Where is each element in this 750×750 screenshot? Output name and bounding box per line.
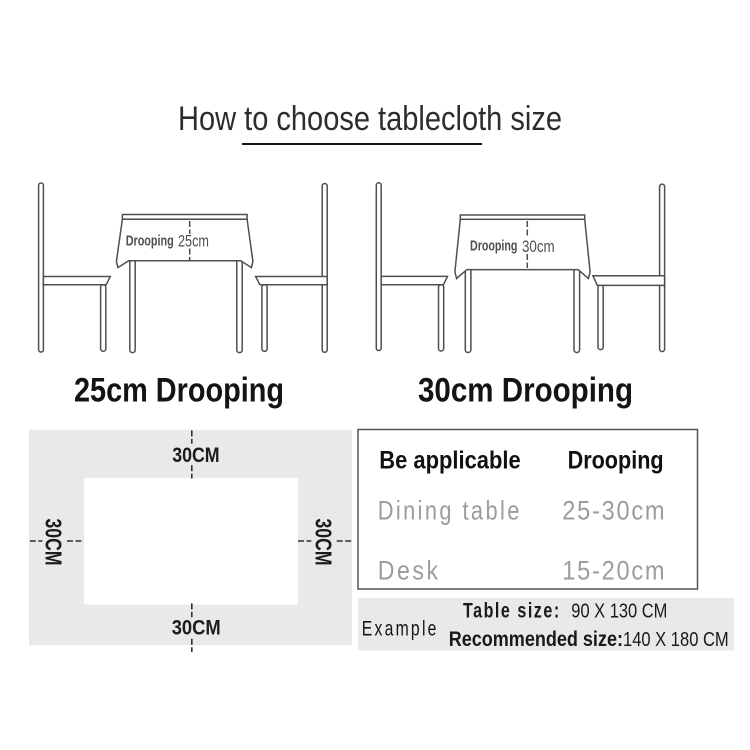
svg-text:How to choose tablecloth size: How to choose tablecloth size: [178, 100, 562, 138]
svg-text:Desk: Desk: [378, 556, 441, 586]
svg-text:90 X 130 CM: 90 X 130 CM: [571, 601, 667, 623]
svg-text:30CM: 30CM: [172, 444, 219, 467]
svg-text:25cm Drooping: 25cm Drooping: [74, 372, 284, 410]
svg-text:Drooping: Drooping: [126, 233, 174, 249]
svg-text:25cm: 25cm: [178, 232, 209, 250]
svg-text:15-20cm: 15-20cm: [562, 556, 666, 586]
svg-text:Example: Example: [362, 617, 439, 640]
svg-text:30CM: 30CM: [40, 519, 66, 566]
svg-text:30CM: 30CM: [172, 617, 221, 640]
svg-text:Dining table: Dining table: [378, 495, 522, 525]
svg-text:Recommended size:: Recommended size:: [449, 628, 623, 651]
svg-text:30cm: 30cm: [522, 238, 555, 256]
svg-text:30CM: 30CM: [311, 519, 337, 566]
svg-text:140 X 180 CM: 140 X 180 CM: [623, 629, 729, 651]
svg-text:30cm Drooping: 30cm Drooping: [418, 372, 633, 410]
svg-text:Drooping: Drooping: [470, 239, 517, 255]
svg-text:Be applicable: Be applicable: [379, 447, 520, 475]
svg-text:Drooping: Drooping: [568, 447, 664, 475]
svg-text:Table size:: Table size:: [463, 600, 561, 623]
svg-text:25-30cm: 25-30cm: [562, 495, 666, 525]
